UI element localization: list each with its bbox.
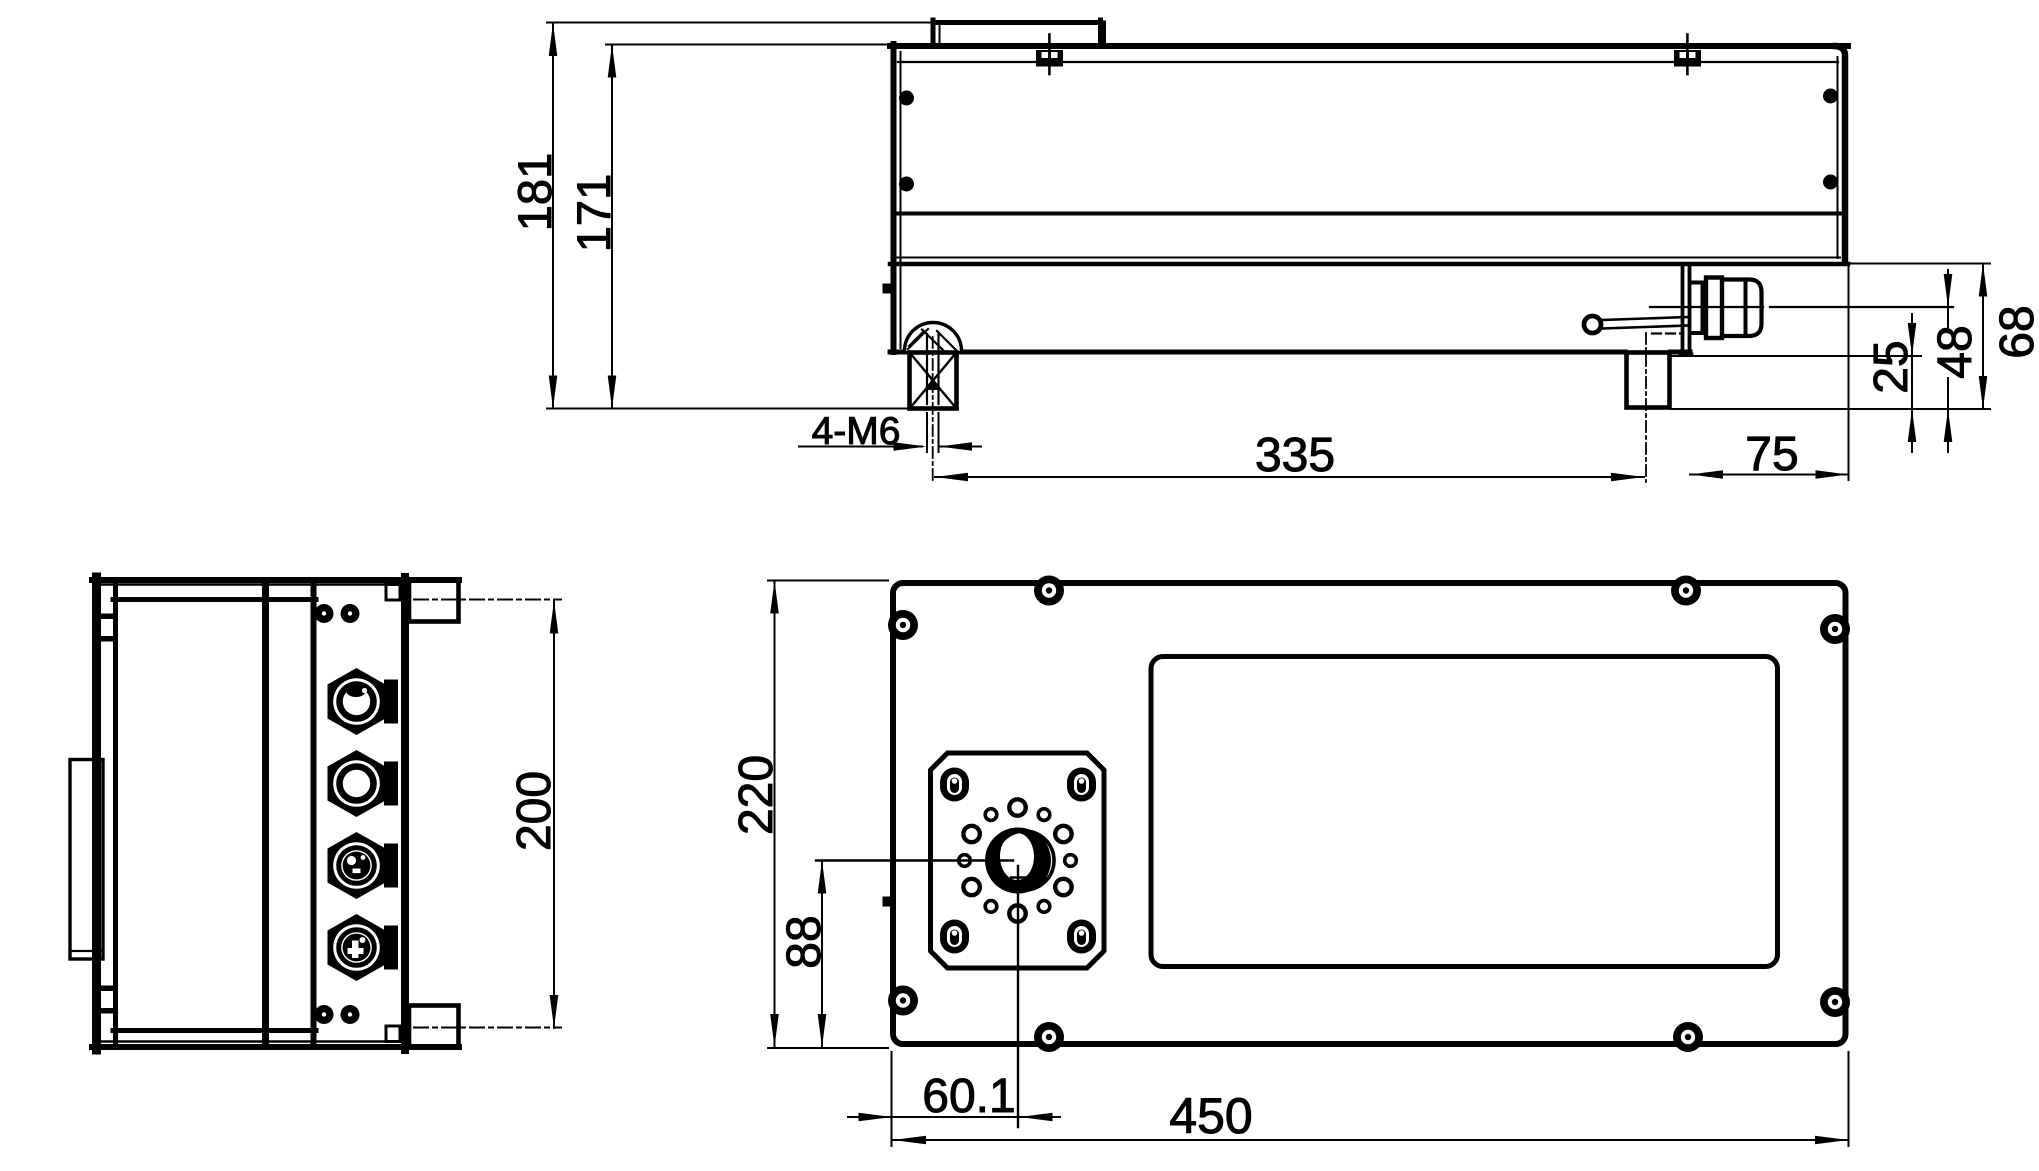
svg-text:88: 88 — [778, 915, 831, 968]
svg-text:181: 181 — [508, 153, 561, 231]
svg-text:25: 25 — [1865, 340, 1918, 393]
svg-text:220: 220 — [730, 755, 783, 835]
svg-text:48: 48 — [1929, 325, 1982, 378]
svg-text:171: 171 — [567, 174, 620, 252]
svg-text:75: 75 — [1745, 428, 1798, 481]
svg-text:200: 200 — [508, 771, 561, 851]
svg-text:4-M6: 4-M6 — [812, 410, 901, 453]
svg-text:450: 450 — [1169, 1088, 1252, 1144]
svg-text:60.1: 60.1 — [922, 1070, 1015, 1123]
svg-text:68: 68 — [1991, 305, 2039, 358]
svg-text:335: 335 — [1255, 429, 1335, 482]
